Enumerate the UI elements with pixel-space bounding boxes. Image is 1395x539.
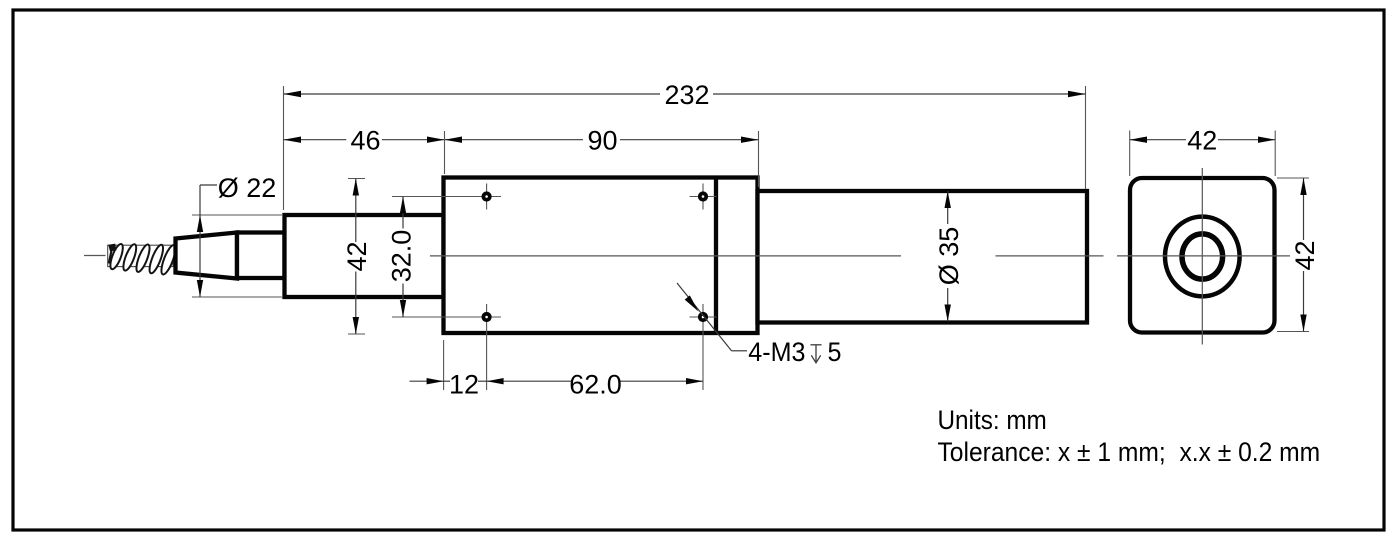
svg-text:232: 232 <box>664 80 709 110</box>
svg-text:42: 42 <box>342 241 372 271</box>
svg-text:46: 46 <box>350 126 380 156</box>
svg-text:Ø 22: Ø 22 <box>218 173 277 203</box>
svg-text:62.0: 62.0 <box>569 369 622 399</box>
svg-text:5: 5 <box>828 336 842 367</box>
svg-text:12: 12 <box>449 369 479 399</box>
svg-text:90: 90 <box>587 126 617 156</box>
svg-text:42: 42 <box>1290 240 1320 270</box>
svg-text:4-M3: 4-M3 <box>748 336 805 367</box>
svg-text:42: 42 <box>1187 126 1217 156</box>
svg-text:Units: mm: Units: mm <box>938 406 1047 435</box>
svg-text:Ø 35: Ø 35 <box>934 227 964 286</box>
svg-text:Tolerance: x ± 1 mm; x.x ± 0.: Tolerance: x ± 1 mm; x.x ± 0.2 mm <box>938 438 1321 467</box>
svg-text:32.0: 32.0 <box>387 230 417 283</box>
